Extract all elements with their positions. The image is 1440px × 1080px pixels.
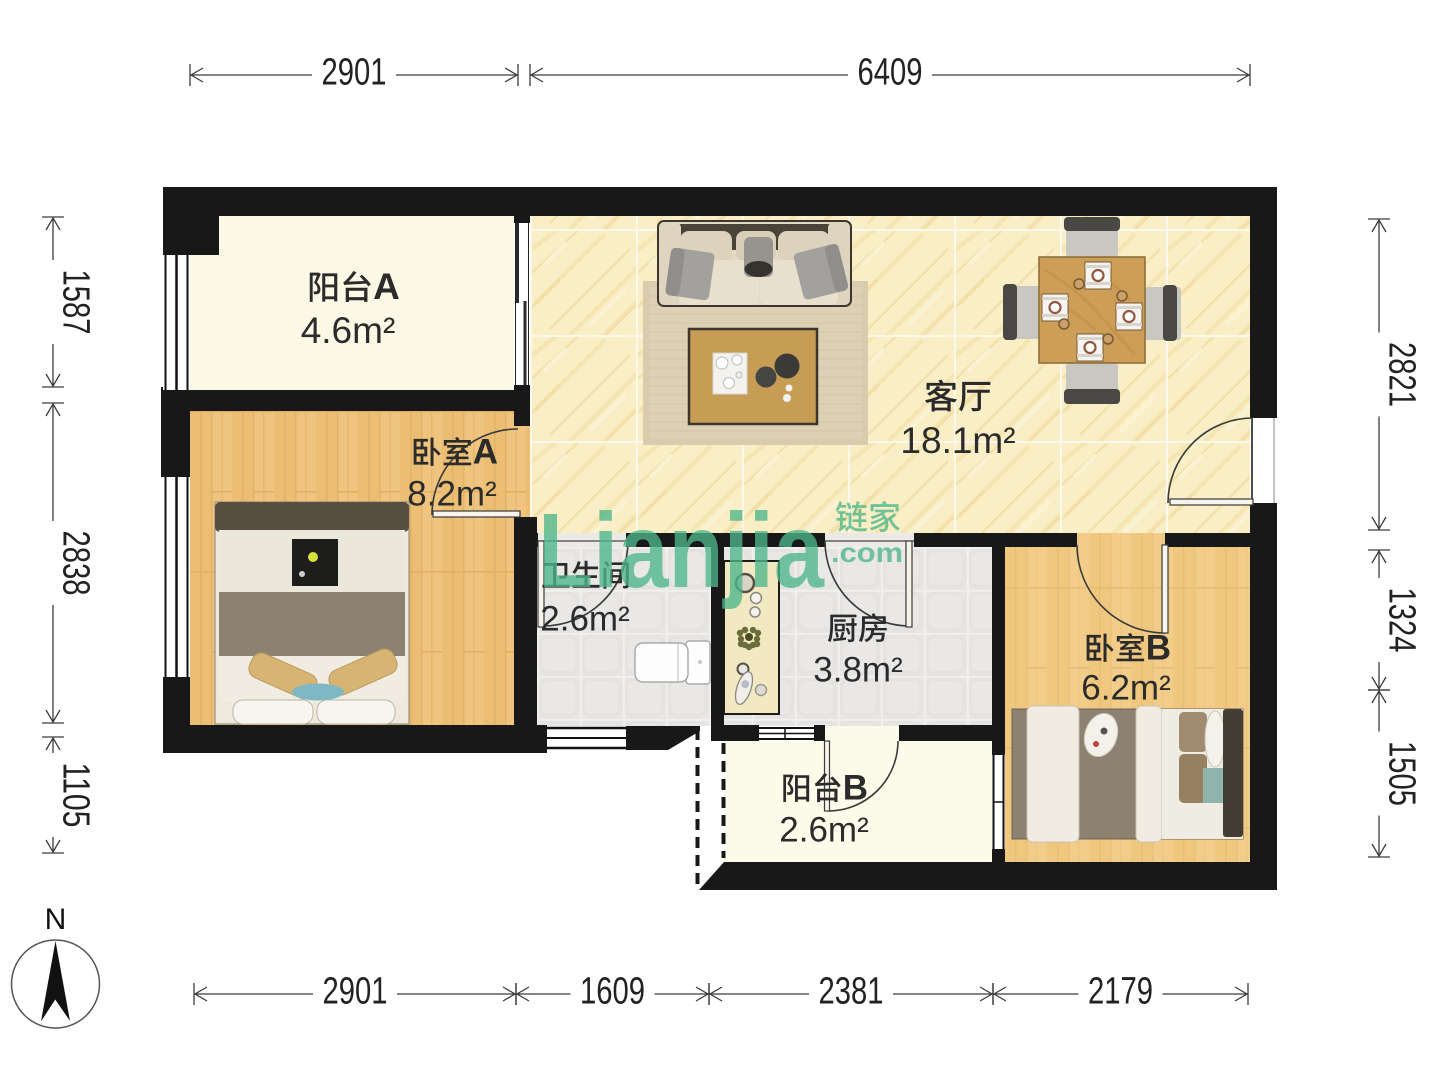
svg-text:8.2m²: 8.2m² <box>407 475 496 514</box>
svg-text:6.2m²: 6.2m² <box>1081 669 1170 708</box>
svg-text:Lianjia: Lianjia <box>538 492 825 610</box>
svg-text:3.8m²: 3.8m² <box>813 651 902 690</box>
svg-text:B: B <box>843 769 868 808</box>
svg-text:A: A <box>373 266 400 307</box>
svg-text:4.6m²: 4.6m² <box>301 310 396 351</box>
svg-text:2838: 2838 <box>55 531 97 596</box>
svg-text:B: B <box>1146 629 1171 668</box>
svg-text:2.6m²: 2.6m² <box>779 811 868 850</box>
svg-text:2381: 2381 <box>819 971 884 1013</box>
svg-text:1105: 1105 <box>55 763 97 828</box>
svg-text:2901: 2901 <box>322 52 387 94</box>
svg-text:N: N <box>45 903 67 936</box>
svg-text:6409: 6409 <box>858 52 923 94</box>
svg-text:1587: 1587 <box>55 270 97 335</box>
svg-text:2821: 2821 <box>1381 342 1423 407</box>
svg-text:2179: 2179 <box>1088 971 1153 1013</box>
svg-text:A: A <box>473 433 498 472</box>
svg-text:18.1m²: 18.1m² <box>900 420 1015 461</box>
svg-text:2901: 2901 <box>323 971 388 1013</box>
svg-text:.com: .com <box>831 537 903 568</box>
svg-text:1505: 1505 <box>1381 741 1423 806</box>
svg-text:1609: 1609 <box>580 971 645 1013</box>
svg-text:1324: 1324 <box>1381 588 1423 653</box>
